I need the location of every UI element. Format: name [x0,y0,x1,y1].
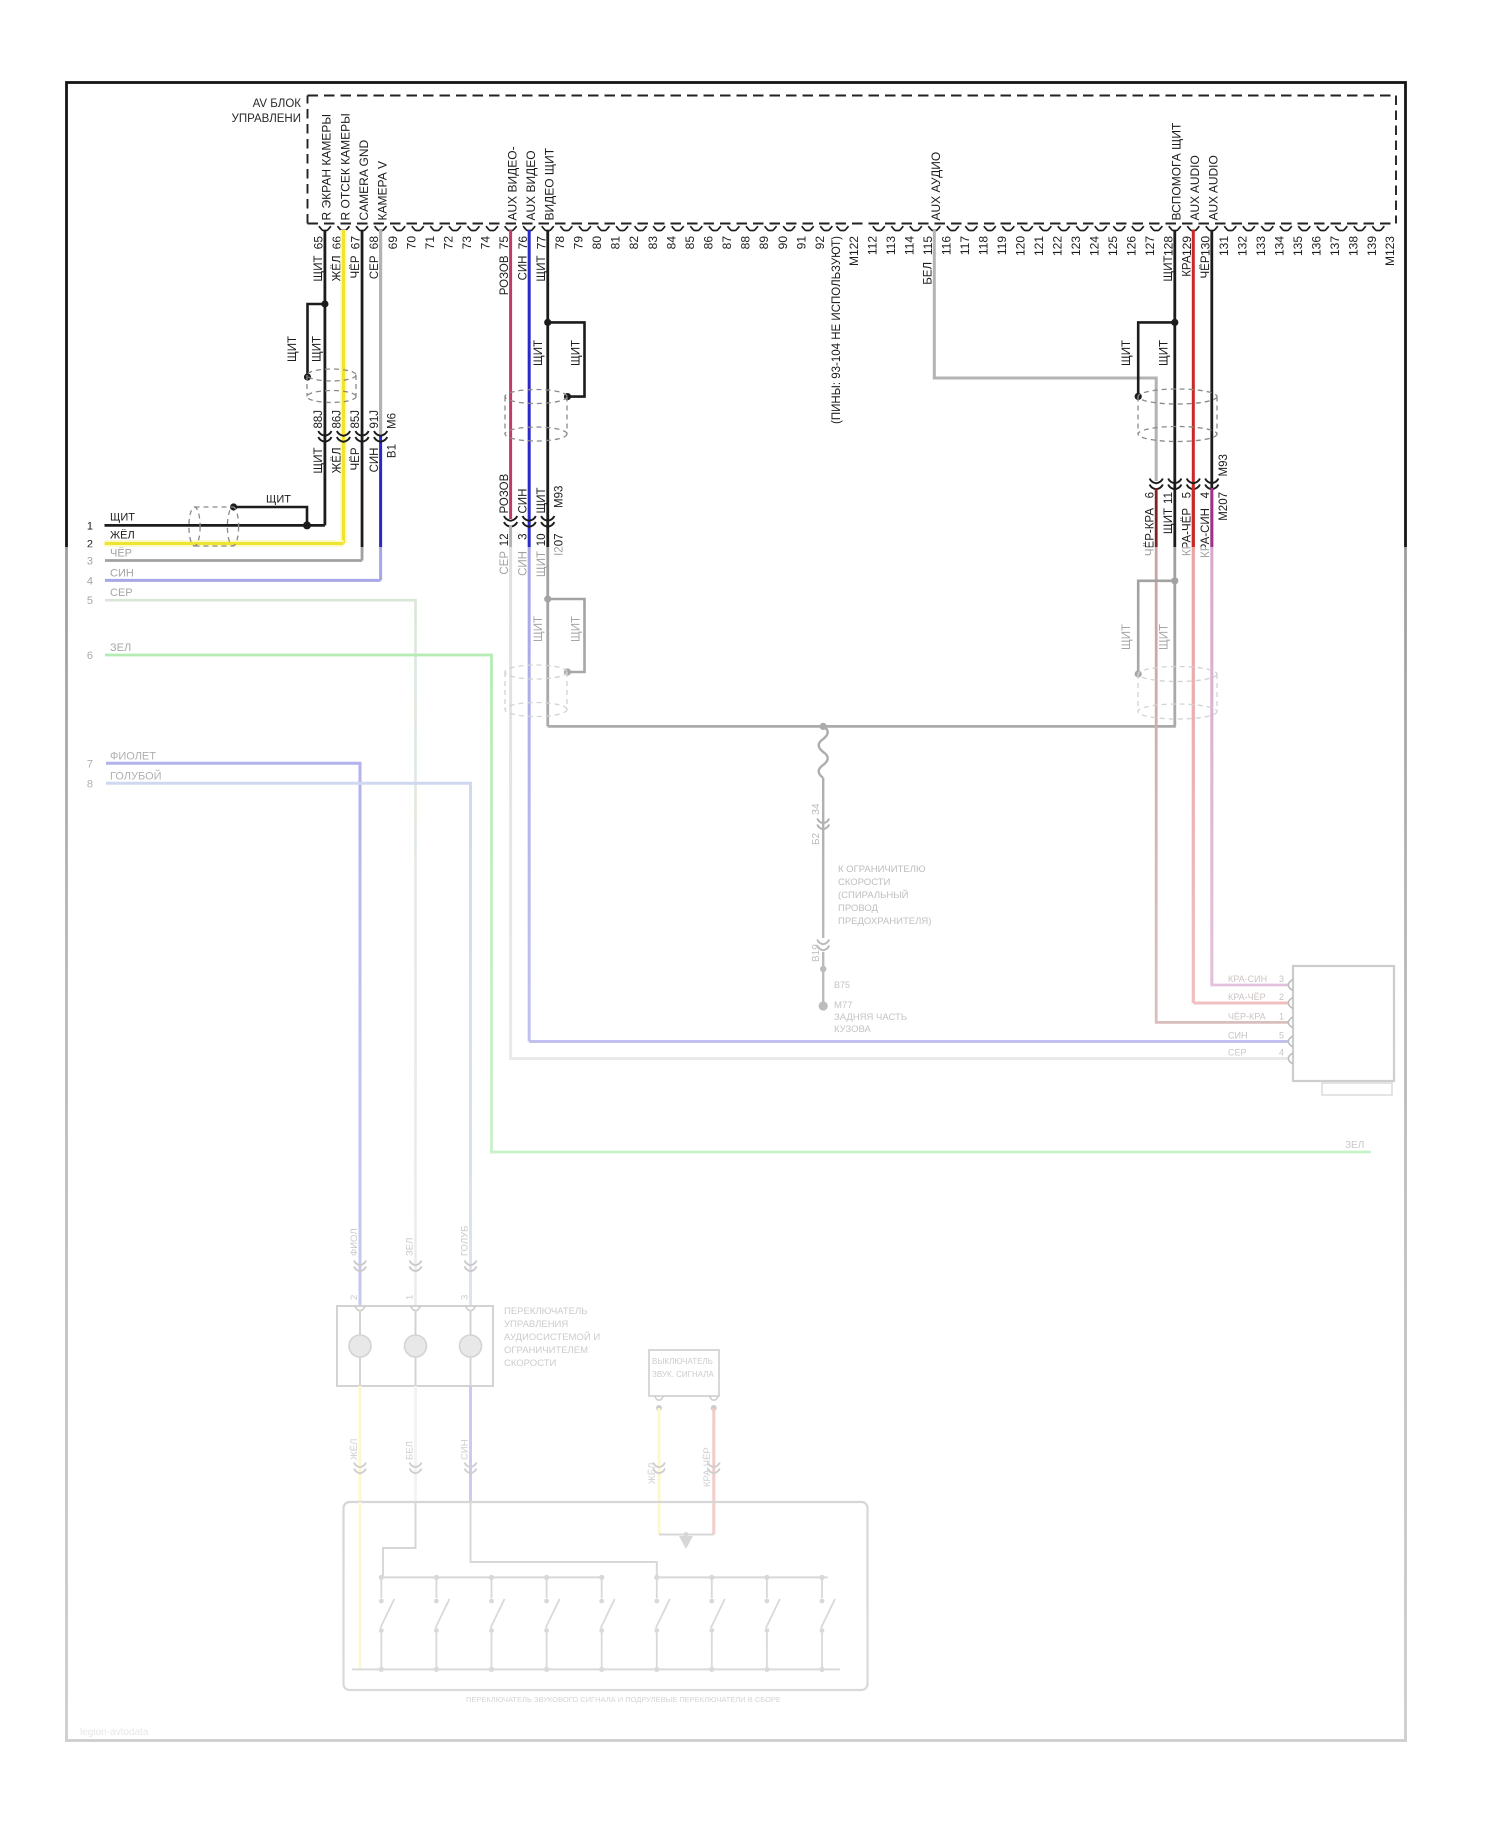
svg-text:88J: 88J [313,410,325,429]
svg-text:ЖЁЛ: ЖЁЛ [332,448,344,474]
svg-text:137: 137 [1328,236,1342,256]
svg-text:83: 83 [646,236,660,250]
svg-text:СИН: СИН [369,448,381,473]
svg-text:128: 128 [1161,236,1175,256]
svg-text:ЩИТ: ЩИТ [536,256,548,282]
svg-text:85J: 85J [350,410,362,429]
svg-text:M123: M123 [1383,236,1397,266]
svg-text:74: 74 [479,236,493,250]
svg-text:87: 87 [720,236,734,250]
svg-text:ЩИТ: ЩИТ [536,487,548,513]
svg-text:12: 12 [499,534,511,547]
svg-text:ЩИТ: ЩИТ [312,336,324,362]
svg-text:ЩИТ: ЩИТ [1121,340,1133,366]
svg-text:136: 136 [1309,236,1323,256]
svg-text:82: 82 [627,236,641,250]
svg-text:10: 10 [536,534,548,547]
svg-text:78: 78 [553,236,567,250]
svg-text:88: 88 [739,236,753,250]
svg-text:РОЗОВ: РОЗОВ [499,255,511,295]
svg-text:ЩИТ: ЩИТ [1163,508,1175,534]
svg-text:ЩИТ: ЩИТ [1159,340,1171,366]
svg-text:(ПИНЫ: 93-104 НЕ ИСПОЛЬЗУЮТ): (ПИНЫ: 93-104 НЕ ИСПОЛЬЗУЮТ) [831,236,843,424]
svg-text:УПРАВЛЕНИ: УПРАВЛЕНИ [232,113,301,125]
svg-text:119: 119 [995,236,1009,255]
svg-text:КАМЕРА V: КАМЕРА V [375,161,389,221]
svg-text:67: 67 [349,236,363,250]
svg-text:120: 120 [1013,236,1027,256]
svg-text:ЩИТ: ЩИТ [110,511,135,523]
svg-text:65: 65 [312,236,326,250]
svg-text:CAMERA GND: CAMERA GND [357,139,371,220]
svg-text:AUX ВИДЕО-: AUX ВИДЕО- [505,146,519,220]
svg-text:ЧЁР: ЧЁР [350,255,362,278]
svg-text:86J: 86J [332,410,344,429]
svg-text:124: 124 [1087,236,1101,256]
svg-text:ЩИТ: ЩИТ [1163,256,1175,282]
svg-text:130: 130 [1198,236,1212,256]
svg-text:116: 116 [939,236,953,255]
svg-text:91J: 91J [369,410,381,429]
svg-text:70: 70 [404,236,418,250]
svg-text:4: 4 [1200,491,1212,498]
svg-text:ЩИТ: ЩИТ [571,340,583,366]
svg-text:113: 113 [884,236,898,255]
svg-text:117: 117 [958,236,972,255]
svg-text:92: 92 [813,236,827,250]
svg-text:ЩИТ: ЩИТ [266,494,291,506]
svg-text:5: 5 [1182,492,1194,498]
svg-text:138: 138 [1346,236,1360,256]
svg-text:89: 89 [757,236,771,250]
svg-text:AUX AUDIO: AUX AUDIO [1207,155,1221,220]
svg-text:123: 123 [1069,236,1083,256]
svg-text:AUX АУДИО: AUX АУДИО [929,152,943,221]
svg-text:125: 125 [1106,236,1120,256]
svg-text:3: 3 [517,534,529,540]
svg-text:R ОТСЕК КАМЕРЫ: R ОТСЕК КАМЕРЫ [338,113,352,220]
svg-text:85: 85 [683,236,697,250]
svg-text:132: 132 [1235,236,1249,256]
svg-text:126: 126 [1124,236,1138,256]
svg-text:118: 118 [976,236,990,255]
svg-text:127: 127 [1143,236,1157,256]
svg-text:131: 131 [1217,236,1231,256]
svg-text:90: 90 [776,236,790,250]
svg-text:91: 91 [794,236,808,250]
svg-text:139: 139 [1365,236,1379,256]
svg-text:ЖЁЛ: ЖЁЛ [110,530,135,542]
svg-text:ЩИТ: ЩИТ [533,340,545,366]
svg-text:133: 133 [1254,236,1268,256]
svg-text:135: 135 [1291,236,1305,256]
svg-text:ЧЁР: ЧЁР [350,447,362,470]
svg-text:72: 72 [441,236,455,250]
svg-text:M207: M207 [1218,492,1230,521]
svg-text:11: 11 [1163,492,1175,504]
svg-text:ЧЁР: ЧЁР [1200,255,1212,278]
svg-text:AV БЛОК: AV БЛОК [253,98,302,110]
svg-text:R ЭКРАН КАМЕРЫ: R ЭКРАН КАМЕРЫ [320,114,334,220]
svg-text:121: 121 [1032,236,1046,256]
svg-text:77: 77 [534,236,548,250]
svg-text:73: 73 [460,236,474,250]
svg-text:СИН: СИН [517,489,529,514]
svg-text:AUX ВИДЕО: AUX ВИДЕО [524,150,538,220]
svg-text:81: 81 [609,236,623,250]
svg-text:ВСПОМОГА ЩИТ: ВСПОМОГА ЩИТ [1170,122,1184,220]
svg-text:B1: B1 [387,444,399,458]
svg-text:ВИДЕО ЩИТ: ВИДЕО ЩИТ [543,147,557,220]
svg-text:114: 114 [902,236,916,255]
svg-text:80: 80 [590,236,604,250]
svg-text:86: 86 [701,236,715,250]
svg-text:М93: М93 [1218,454,1230,476]
svg-text:КРА: КРА [1182,255,1194,277]
svg-text:БЕЛ: БЕЛ [923,262,935,285]
svg-text:71: 71 [423,236,437,250]
svg-text:РОЗОВ: РОЗОВ [499,473,511,513]
svg-text:СИН: СИН [517,256,529,281]
svg-text:112: 112 [865,236,879,255]
svg-text:M122: M122 [847,236,861,266]
svg-text:1: 1 [87,520,93,532]
svg-text:122: 122 [1050,236,1064,256]
svg-text:M6: M6 [387,413,399,429]
svg-text:ЩИТ: ЩИТ [313,256,325,282]
svg-text:134: 134 [1272,236,1286,256]
svg-text:ЩИТ: ЩИТ [313,448,325,474]
svg-text:М93: М93 [554,486,566,508]
svg-text:6: 6 [1144,492,1156,498]
svg-text:69: 69 [386,236,400,250]
svg-text:ЩИТ: ЩИТ [287,336,299,362]
svg-text:84: 84 [664,236,678,250]
svg-text:79: 79 [571,236,585,250]
svg-text:AUX AUDIO: AUX AUDIO [1188,155,1202,220]
